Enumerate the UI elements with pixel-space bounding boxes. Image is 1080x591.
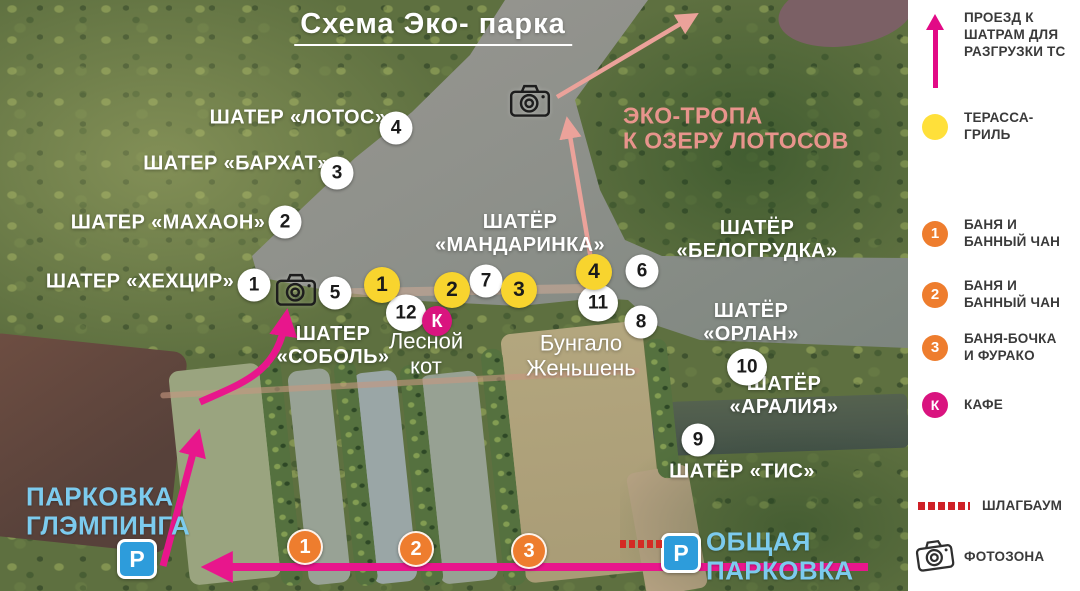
legend-label: ФОТОЗОНА	[964, 549, 1044, 566]
numbered-marker-8: 8	[625, 306, 658, 339]
marker-label: 5	[330, 282, 341, 304]
legend-item-kafe-К: ККАФЕ	[918, 392, 1076, 418]
barrier-icon	[918, 502, 970, 510]
marker-label: 4	[391, 117, 402, 139]
numbered-marker-11: 11	[578, 285, 618, 322]
map-area: Схема Эко- парка ШАТЕР «ЛОТОС»ШАТЕР «БАР…	[0, 0, 908, 591]
marker-label: 6	[637, 260, 648, 282]
numbered-marker-12: 12	[386, 295, 426, 332]
terrace-grill-marker-3: 3	[501, 272, 537, 308]
label-tent-orlan: ШАТЁР «ОРЛАН»	[673, 300, 830, 346]
label-tent-sobol: ШАТЕР «СОБОЛЬ»	[277, 323, 390, 369]
label-bungalo-zhenshen: Бунгало Женьшень	[526, 331, 635, 382]
numbered-marker-9: 9	[682, 424, 715, 457]
marker-label: 4	[588, 260, 600, 284]
photo-zone-camera-icon	[274, 271, 318, 307]
barrier-icon	[620, 540, 662, 548]
legend-item-route-arrow: ПРОЕЗД К ШАТРАМ ДЛЯ РАЗГРУЗКИ ТС	[918, 10, 1076, 88]
numbered-marker-1: 1	[238, 269, 271, 302]
label-eco-trail: ЭКО-ТРОПА К ОЗЕРУ ЛОТОСОВ	[623, 104, 849, 155]
marker-label: 10	[736, 356, 757, 378]
marker-label: 1	[376, 273, 388, 297]
label-tent-belogrudka: ШАТЁР «БЕЛОГРУДКА»	[676, 217, 837, 263]
label-tent-lotos: ШАТЕР «ЛОТОС»	[210, 107, 387, 130]
marker-label: 3	[523, 540, 534, 563]
route-arrow-icon	[918, 10, 952, 88]
banya-marker-3: 3	[511, 533, 547, 569]
label-general-parking: ОБЩАЯ ПАРКОВКА	[706, 528, 854, 587]
label-tent-khekhtsir: ШАТЕР «ХЕХЦИР»	[46, 271, 234, 294]
legend-label: ТЕРАССА- ГРИЛЬ	[964, 110, 1034, 144]
terrace-grill-marker-1: 1	[364, 267, 400, 303]
marker-label: К	[432, 311, 443, 332]
marker-label: 2	[410, 538, 421, 561]
label-lesnoy-kot: Лесной кот	[389, 329, 463, 380]
legend-item-barrier: ШЛАГБАУМ	[918, 498, 1076, 515]
page-title: Схема Эко- парка	[294, 8, 572, 46]
marker-label: 12	[395, 302, 416, 324]
legend-item-camera: ФОТОЗОНА	[918, 538, 1076, 576]
legend-item-banya-1: 1БАНЯ И БАННЫЙ ЧАН	[918, 217, 1076, 251]
label-tent-barkhat: ШАТЕР «БАРХАТ»	[143, 153, 328, 176]
marker-label: P	[129, 546, 144, 573]
label-tent-mandarinka: ШАТЁР «МАНДАРИНКА»	[435, 211, 605, 257]
label-glamping-parking: ПАРКОВКА ГЛЭМПИНГА	[26, 483, 190, 542]
banya-marker-1: 1	[287, 529, 323, 565]
label-tent-tis: ШАТЁР «ТИС»	[669, 461, 815, 484]
legend-label: ПРОЕЗД К ШАТРАМ ДЛЯ РАЗГРУЗКИ ТС	[964, 10, 1065, 61]
eco-park-scheme: Схема Эко- парка ШАТЕР «ЛОТОС»ШАТЕР «БАР…	[0, 0, 1080, 591]
marker-label: 1	[299, 536, 310, 559]
legend-label: КАФЕ	[964, 397, 1003, 414]
legend-item-banya-2: 2БАНЯ И БАННЫЙ ЧАН	[918, 278, 1076, 312]
numbered-marker-7: 7	[470, 265, 503, 298]
marker-label: 3	[332, 162, 343, 184]
legend-item-terrace: ТЕРАССА- ГРИЛЬ	[918, 110, 1076, 144]
banya-3-icon: 3	[918, 335, 952, 361]
marker-label: P	[673, 540, 688, 567]
marker-label: 2	[446, 278, 458, 302]
eco-trail-arrow-diagonal	[557, 17, 692, 97]
marker-label: 8	[636, 311, 647, 333]
numbered-marker-4: 4	[380, 112, 413, 145]
label-tent-makhaon: ШАТЕР «МАХАОН»	[71, 212, 265, 235]
numbered-marker-6: 6	[626, 255, 659, 288]
marker-label: 2	[280, 211, 291, 233]
numbered-marker-5: 5	[319, 277, 352, 310]
photo-zone-camera-icon	[508, 82, 552, 118]
photo-zone-camera-icon	[918, 538, 952, 576]
terrace-grill-marker-2: 2	[434, 272, 470, 308]
parking-icon: P	[661, 533, 701, 573]
terrace-grill-icon	[918, 114, 952, 140]
numbered-marker-3: 3	[321, 157, 354, 190]
terrace-grill-marker-4: 4	[576, 254, 612, 290]
marker-label: 9	[693, 429, 704, 451]
numbered-marker-10: 10	[727, 349, 767, 386]
legend-label: БАНЯ И БАННЫЙ ЧАН	[964, 217, 1060, 251]
legend-panel: ПРОЕЗД К ШАТРАМ ДЛЯ РАЗГРУЗКИ ТСТЕРАССА-…	[908, 0, 1080, 591]
marker-label: 1	[249, 274, 260, 296]
marker-label: 3	[513, 278, 525, 302]
numbered-marker-2: 2	[269, 206, 302, 239]
legend-item-banya-3: 3БАНЯ-БОЧКА И ФУРАКО	[918, 331, 1076, 365]
parking-icon: P	[117, 539, 157, 579]
banya-1-icon: 1	[918, 221, 952, 247]
banya-marker-2: 2	[398, 531, 434, 567]
legend-label: БАНЯ И БАННЫЙ ЧАН	[964, 278, 1060, 312]
marker-label: 7	[481, 270, 492, 292]
kafe-marker: К	[422, 306, 452, 336]
banya-2-icon: 2	[918, 282, 952, 308]
unloading-route-arrow-sobol	[200, 318, 286, 402]
marker-label: 11	[588, 292, 608, 314]
kafe-icon: К	[918, 392, 952, 418]
legend-label: ШЛАГБАУМ	[982, 498, 1062, 515]
legend-label: БАНЯ-БОЧКА И ФУРАКО	[964, 331, 1057, 365]
